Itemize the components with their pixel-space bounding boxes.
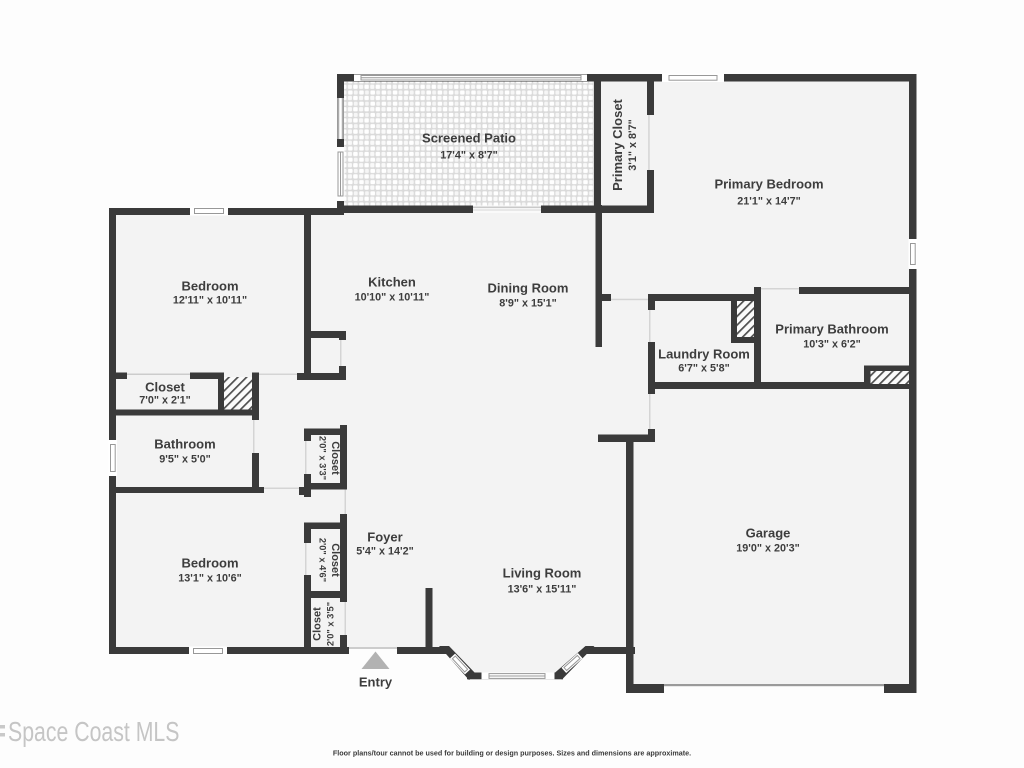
svg-text:6'7" x 5'8": 6'7" x 5'8" [678, 363, 729, 375]
svg-text:Bedroom: Bedroom [181, 556, 238, 571]
svg-text:9'5" x 5'0": 9'5" x 5'0" [159, 454, 210, 466]
svg-text:Primary Bedroom: Primary Bedroom [714, 177, 823, 192]
svg-text:5'4" x 14'2": 5'4" x 14'2" [356, 546, 413, 558]
svg-text:13'1" x 10'6": 13'1" x 10'6" [178, 573, 241, 585]
svg-text:Closet: Closet [329, 441, 341, 475]
svg-text:Closet: Closet [145, 380, 185, 395]
svg-text:2'0" x 4'6": 2'0" x 4'6" [318, 538, 328, 582]
svg-text:Primary Bathroom: Primary Bathroom [775, 322, 888, 337]
svg-text:21'1" x 14'7": 21'1" x 14'7" [737, 196, 800, 208]
svg-text:Living Room: Living Room [503, 566, 582, 581]
svg-text:10'3" x 6'2": 10'3" x 6'2" [803, 339, 860, 351]
svg-text:7'0" x 2'1": 7'0" x 2'1" [139, 395, 190, 407]
svg-text:Foyer: Foyer [367, 530, 402, 545]
svg-text:12'11" x 10'11": 12'11" x 10'11" [173, 295, 247, 307]
svg-text:Closet: Closet [312, 607, 324, 641]
svg-text:Dining Room: Dining Room [488, 281, 569, 296]
svg-text:Kitchen: Kitchen [368, 275, 416, 290]
svg-text:Screened Patio: Screened Patio [422, 131, 516, 146]
svg-text:Closet: Closet [329, 543, 341, 577]
svg-text:Space Coast MLS: Space Coast MLS [8, 716, 179, 748]
svg-text:Garage: Garage [746, 526, 791, 541]
svg-text:Floor plans/tour cannot be use: Floor plans/tour cannot be used for buil… [333, 749, 691, 758]
svg-text:10'10" x 10'11": 10'10" x 10'11" [355, 292, 430, 304]
svg-text:2'0" x 3'3": 2'0" x 3'3" [318, 436, 328, 480]
svg-text:Primary Closet: Primary Closet [610, 98, 625, 190]
svg-text:8'9" x 15'1": 8'9" x 15'1" [499, 298, 556, 310]
svg-text:13'6" x 15'11": 13'6" x 15'11" [508, 584, 577, 596]
svg-text:19'0" x 20'3": 19'0" x 20'3" [736, 543, 799, 555]
svg-text:Bedroom: Bedroom [181, 279, 238, 294]
svg-text:17'4" x 8'7": 17'4" x 8'7" [440, 150, 497, 162]
svg-text:Bathroom: Bathroom [154, 437, 215, 452]
svg-text:3'1" x 8'7": 3'1" x 8'7" [627, 119, 639, 170]
svg-text:Entry: Entry [359, 675, 393, 690]
svg-text:Laundry Room: Laundry Room [658, 347, 750, 362]
svg-text:2'0" x 3'5": 2'0" x 3'5" [326, 602, 336, 646]
